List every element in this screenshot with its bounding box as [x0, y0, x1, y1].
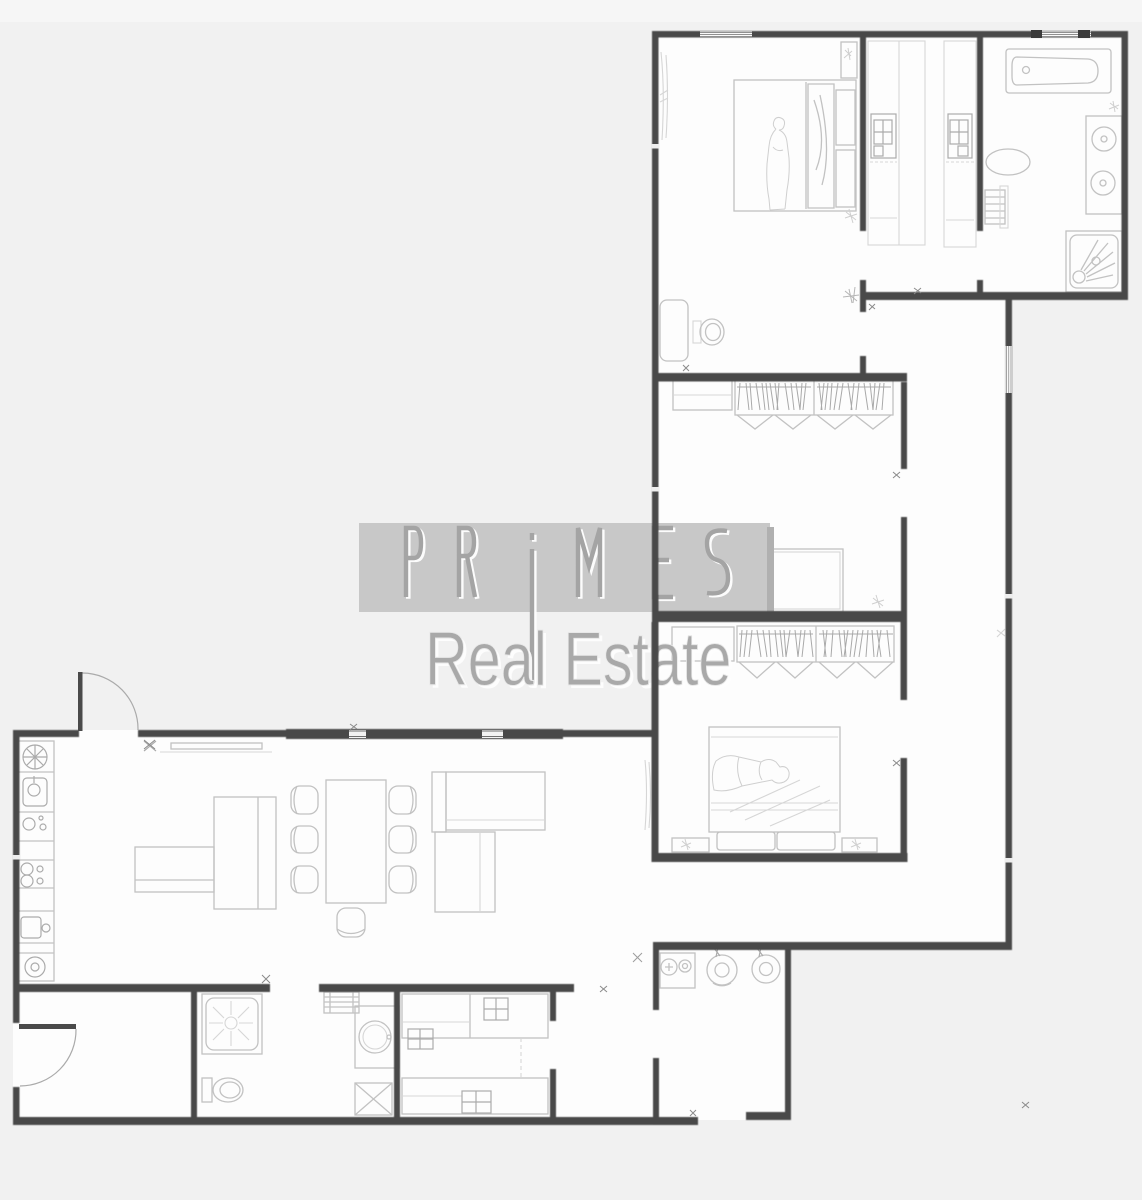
svg-text:Real Estate: Real Estate [425, 617, 731, 702]
